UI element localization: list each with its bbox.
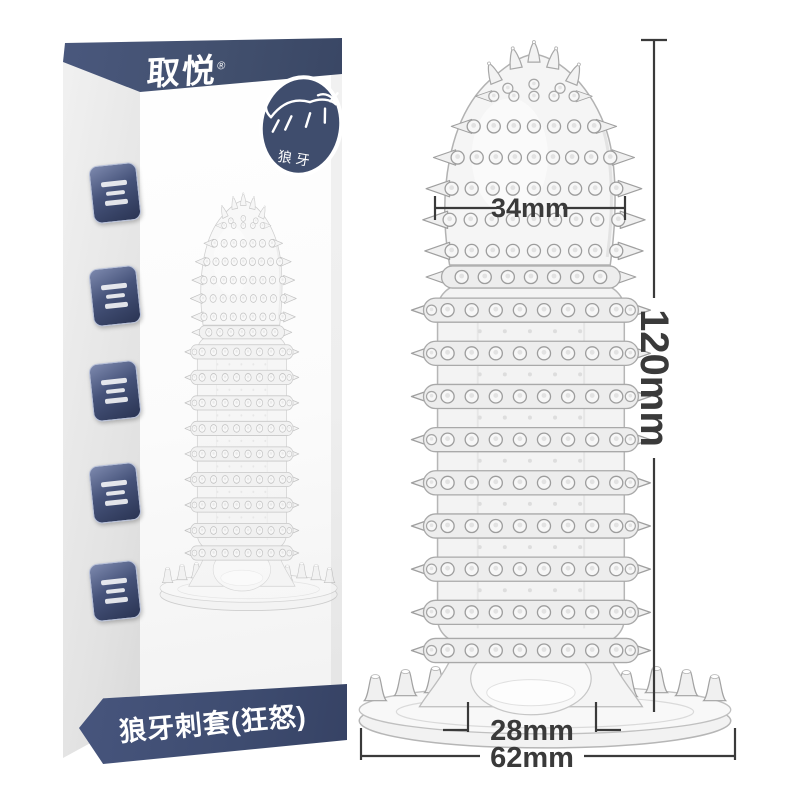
product-photo: 34mm 120mm 28mm 62mm: [356, 26, 738, 774]
product-listing-image: { "box": { "brand": { "logo_text": "取悦",…: [0, 0, 800, 800]
seal-stamp-icon: [88, 462, 142, 525]
seal-stamp-icon: [88, 560, 142, 623]
brand-badge: 狼牙: [255, 72, 347, 184]
product-name-label: 狼牙刺套(狂怒): [117, 693, 308, 748]
base-width-label: 62mm: [490, 742, 574, 774]
total-length-label: 120mm: [632, 309, 676, 447]
head-width-label: 34mm: [491, 193, 569, 223]
product-box: 取悦® 狼牙 狼牙刺套(狂怒): [55, 38, 357, 770]
registered-mark: ®: [217, 60, 228, 73]
box-product-print: [159, 184, 341, 626]
seal-stamp-icon: [88, 360, 142, 423]
seal-stamp-icon: [88, 162, 142, 225]
brand-logo-text: 取悦: [146, 51, 218, 92]
seal-stamp-icon: [88, 265, 142, 328]
brand-logo: 取悦®: [146, 43, 229, 95]
